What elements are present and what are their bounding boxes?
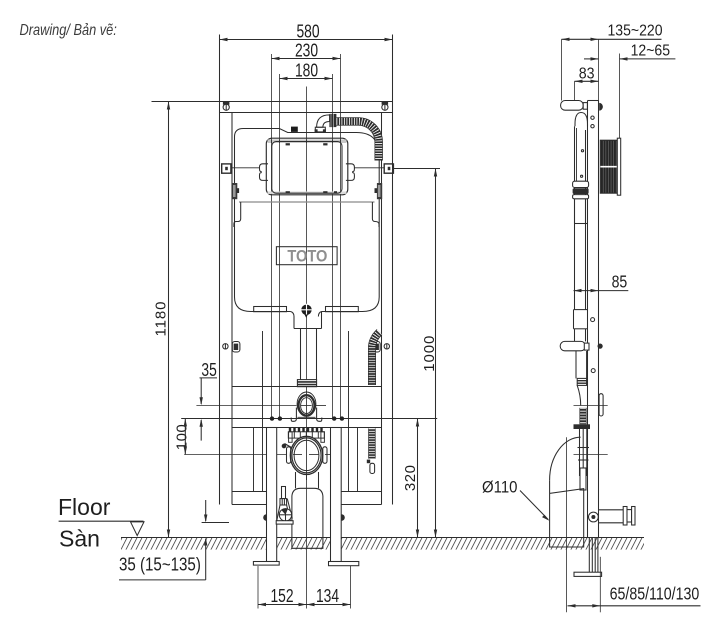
svg-text:Drawing/ Bản vẽ:: Drawing/ Bản vẽ: bbox=[20, 22, 117, 40]
svg-text:1180: 1180 bbox=[153, 301, 170, 337]
svg-text:Floor: Floor bbox=[58, 494, 111, 520]
svg-text:12~65: 12~65 bbox=[631, 42, 670, 60]
svg-text:85: 85 bbox=[612, 273, 628, 292]
svg-text:134: 134 bbox=[316, 586, 339, 606]
svg-text:320: 320 bbox=[402, 465, 419, 492]
svg-text:580: 580 bbox=[296, 22, 319, 42]
svg-text:Sàn: Sàn bbox=[59, 526, 100, 552]
svg-text:35 (15~135): 35 (15~135) bbox=[119, 554, 201, 575]
svg-text:135~220: 135~220 bbox=[607, 22, 662, 40]
svg-text:Ø110: Ø110 bbox=[482, 479, 518, 497]
svg-text:180: 180 bbox=[295, 61, 318, 81]
svg-text:TOTO: TOTO bbox=[287, 247, 327, 265]
svg-text:100: 100 bbox=[173, 424, 190, 451]
svg-text:152: 152 bbox=[270, 586, 293, 606]
svg-text:65/85/110/130: 65/85/110/130 bbox=[610, 585, 700, 603]
